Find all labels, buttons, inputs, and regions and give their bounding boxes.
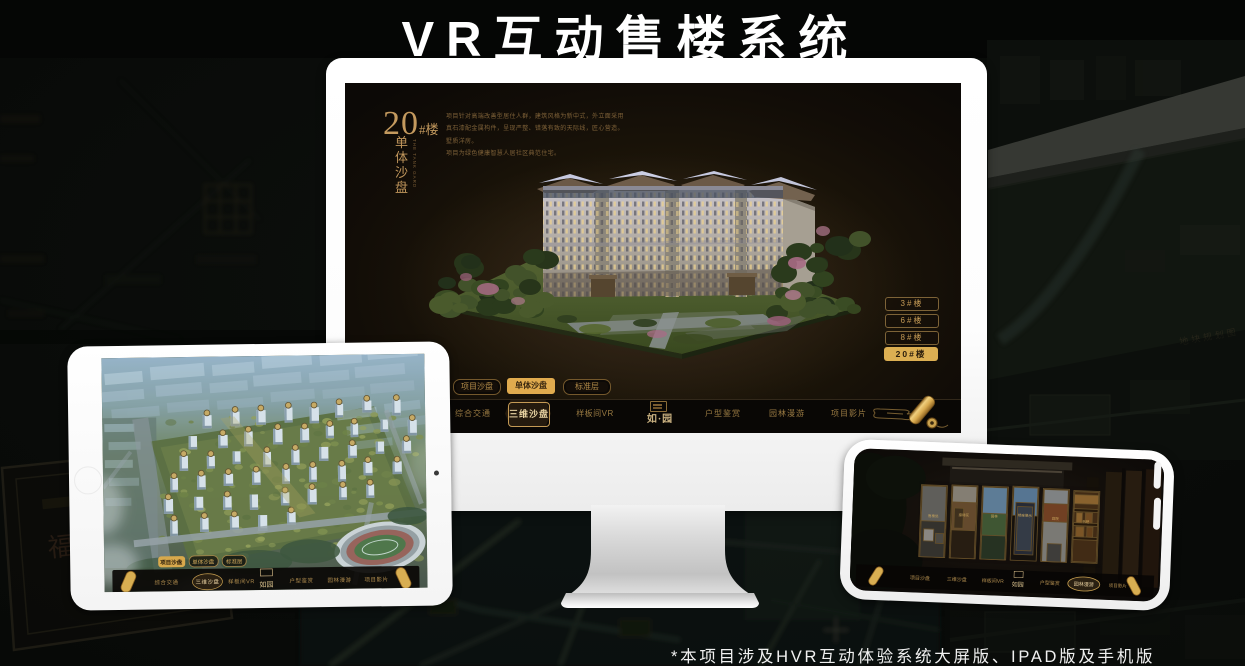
svg-text:书吧: 书吧 [1082,519,1090,524]
svg-text:样板间VR: 样板间VR [982,577,1005,585]
svg-text:园林漫游: 园林漫游 [1074,581,1094,589]
svg-text:庭院: 庭院 [1052,516,1060,521]
svg-text:园林: 园林 [991,513,999,518]
svg-text:户型鉴赏: 户型鉴赏 [1040,579,1060,587]
svg-text:售楼处: 售楼处 [928,513,939,518]
svg-text:接待区: 接待区 [959,512,970,517]
svg-text:楼座展示: 楼座展示 [1018,512,1033,518]
svg-text:标准层: 标准层 [226,557,243,565]
svg-text:项目沙盘: 项目沙盘 [910,574,930,582]
svg-text:三维沙盘: 三维沙盘 [947,576,967,584]
svg-text:如园: 如园 [259,580,273,589]
